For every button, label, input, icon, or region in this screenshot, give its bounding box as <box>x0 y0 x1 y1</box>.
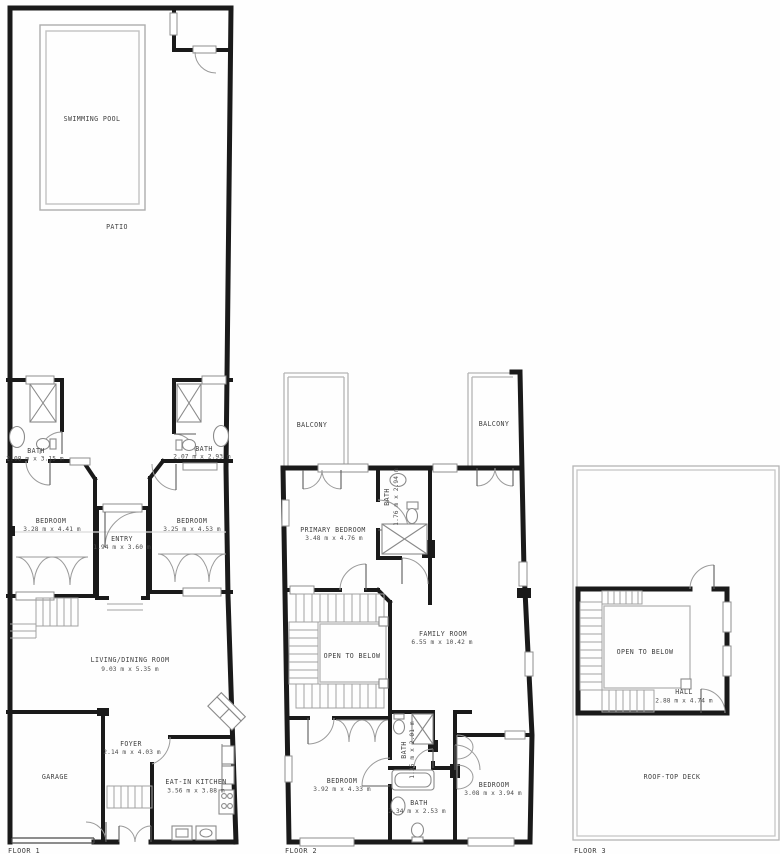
window <box>183 463 217 470</box>
room-dims-bath-left: 2.08 m x 3.15 m <box>6 456 64 463</box>
room-label-foyer: FOYER <box>120 740 142 748</box>
room-label-kitchen: EAT-IN KITCHEN <box>165 778 226 786</box>
window <box>170 13 177 35</box>
f1-exterior-walls <box>10 8 236 842</box>
kitchen-sink <box>196 826 216 840</box>
sink <box>10 427 25 448</box>
dishwasher <box>172 826 192 840</box>
sink <box>214 426 229 447</box>
wall-jog <box>517 588 531 598</box>
window <box>525 652 533 676</box>
room-label-balcony-left: BALCONY <box>297 421 328 429</box>
toilet <box>407 509 418 524</box>
window <box>519 562 527 586</box>
room-dims-bedroom-left: 3.28 m x 4.41 m <box>23 526 81 533</box>
room-label-patio: PATIO <box>106 223 128 231</box>
room-label-family-room: FAMILY ROOM <box>419 630 467 638</box>
room-label-primary-bedroom: PRIMARY BEDROOM <box>300 526 366 534</box>
window <box>282 500 289 526</box>
f1-foyer-stairs-treads <box>107 604 143 808</box>
room-label-swimming-pool: SWIMMING POOL <box>64 115 121 123</box>
f3-deck-rail-inner <box>577 470 775 836</box>
room-dims-bath-right: 2.07 m x 2.93 m <box>173 454 231 461</box>
room-dims-bedroom-right: 3.08 m x 3.94 m <box>464 790 522 797</box>
toilet <box>183 440 196 451</box>
window <box>723 602 731 632</box>
window <box>70 458 90 465</box>
room-label-bath-right: BATH <box>195 445 212 453</box>
room-dims-bath-primary: 1.76 m x 2.94 m <box>393 468 400 526</box>
f2-stairs-landing-outline <box>289 622 318 684</box>
window <box>433 464 457 472</box>
floor2-plan: BALCONY BALCONY PRIMARY BEDROOM 3.48 m x… <box>282 372 533 854</box>
toilet-tank <box>394 714 404 719</box>
sofa <box>208 693 245 730</box>
f3-stairs-landing-outline <box>580 602 602 690</box>
room-dims-kitchen: 3.56 m x 3.88 m <box>167 788 225 795</box>
room-dims-entry: 1.94 m x 3.60 m <box>93 544 151 551</box>
window <box>318 464 368 472</box>
toilet-tank <box>50 439 56 449</box>
floor3-plan: OPEN TO BELOW HALL 2.88 m x 4.74 m ROOF-… <box>573 466 779 854</box>
window <box>285 756 292 782</box>
window <box>505 731 525 739</box>
room-label-balcony-right: BALCONY <box>479 420 510 428</box>
room-label-bath-small: BATH <box>400 741 408 758</box>
toilet-tank <box>412 837 423 842</box>
room-dims-hall: 2.88 m x 4.74 m <box>655 698 713 705</box>
floorplan-canvas: SWIMMING POOL PATIO BATH 2.08 m x 3.15 m… <box>0 0 780 854</box>
room-label-bath-primary: BATH <box>383 488 391 505</box>
door-leaf-storage <box>193 46 216 53</box>
room-dims-foyer: 2.14 m x 4.03 m <box>103 749 161 756</box>
room-dims-bedroom-right: 3.25 m x 4.53 m <box>163 526 221 533</box>
f3-stairs-bottom-outline <box>602 690 654 712</box>
room-label-open-to-below: OPEN TO BELOW <box>617 648 674 656</box>
room-label-bath-left: BATH <box>27 447 44 455</box>
garage-wall-corner <box>97 708 109 716</box>
f2-stairs-bottom-outline <box>296 684 384 708</box>
window <box>723 646 731 676</box>
toilet <box>394 720 405 734</box>
room-label-bedroom-right: BEDROOM <box>177 517 208 525</box>
window <box>468 838 514 846</box>
newel-post <box>379 617 388 626</box>
garage-door <box>12 838 94 843</box>
room-dims-primary-bedroom: 3.48 m x 4.76 m <box>305 535 363 542</box>
room-label-hall: HALL <box>675 688 692 696</box>
wall-jog <box>8 526 15 536</box>
room-dims-bedroom-left: 3.92 m x 4.33 m <box>313 786 371 793</box>
room-dims-bath-bottom: 2.34 m x 2.53 m <box>388 808 446 815</box>
floor1-plan: SWIMMING POOL PATIO BATH 2.08 m x 3.15 m… <box>6 8 245 854</box>
f1-interior-walls <box>8 8 231 842</box>
toilet-tank <box>407 502 418 509</box>
room-label-open-to-below: OPEN TO BELOW <box>324 652 381 660</box>
floor3-label: FLOOR 3 <box>574 847 606 854</box>
room-label-bedroom-left: BEDROOM <box>36 517 67 525</box>
floorplan-svg: SWIMMING POOL PATIO BATH 2.08 m x 3.15 m… <box>0 0 780 854</box>
room-label-bath-bottom: BATH <box>410 799 427 807</box>
room-label-bedroom-left: BEDROOM <box>327 777 358 785</box>
floor2-label: FLOOR 2 <box>285 847 317 854</box>
fridge <box>222 746 234 764</box>
room-label-living-dining: LIVING/DINING ROOM <box>91 656 170 664</box>
f2-stairs-top-outline <box>296 594 384 622</box>
f1-stairs-treads <box>10 598 71 638</box>
window <box>183 588 221 596</box>
room-dims-living-dining: 9.03 m x 5.35 m <box>101 666 159 673</box>
room-label-garage: GARAGE <box>42 773 68 781</box>
window <box>103 504 142 512</box>
floor1-label: FLOOR 1 <box>8 847 40 854</box>
f1-closet-fans <box>16 554 226 585</box>
window <box>300 838 354 846</box>
f3-open-shaft <box>604 606 690 688</box>
window <box>290 586 314 594</box>
window <box>202 376 226 384</box>
room-label-bedroom-right: BEDROOM <box>479 781 510 789</box>
window <box>26 376 54 384</box>
newel-post <box>379 679 388 688</box>
toilet <box>412 823 424 837</box>
f2-stairs-treads <box>289 594 376 708</box>
room-label-roof-deck: ROOF-TOP DECK <box>644 773 701 781</box>
toilet-tank <box>176 440 182 450</box>
room-dims-family-room: 6.55 m x 10.42 m <box>411 639 472 646</box>
room-label-entry: ENTRY <box>111 535 133 543</box>
room-dims-bath-small: 1.35 m x 2.01 m <box>409 721 416 779</box>
window <box>16 592 54 600</box>
